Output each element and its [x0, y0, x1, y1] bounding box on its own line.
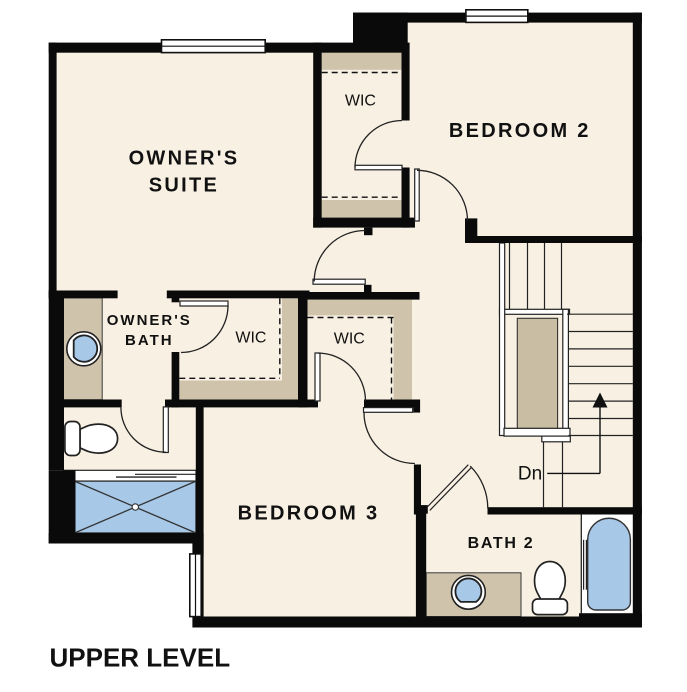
svg-text:OWNER'S: OWNER'S	[107, 312, 192, 329]
svg-text:BATH 2: BATH 2	[468, 535, 535, 552]
svg-text:WIC: WIC	[235, 329, 266, 346]
svg-text:Dn: Dn	[518, 463, 542, 484]
svg-text:BEDROOM 3: BEDROOM 3	[238, 503, 380, 525]
svg-text:WIC: WIC	[334, 331, 365, 348]
svg-text:UPPER LEVEL: UPPER LEVEL	[50, 643, 231, 673]
svg-text:SUITE: SUITE	[149, 175, 219, 197]
svg-text:BEDROOM 2: BEDROOM 2	[449, 120, 591, 142]
svg-text:WIC: WIC	[345, 92, 376, 109]
svg-text:OWNER'S: OWNER'S	[129, 148, 240, 170]
svg-text:BATH: BATH	[125, 332, 174, 349]
